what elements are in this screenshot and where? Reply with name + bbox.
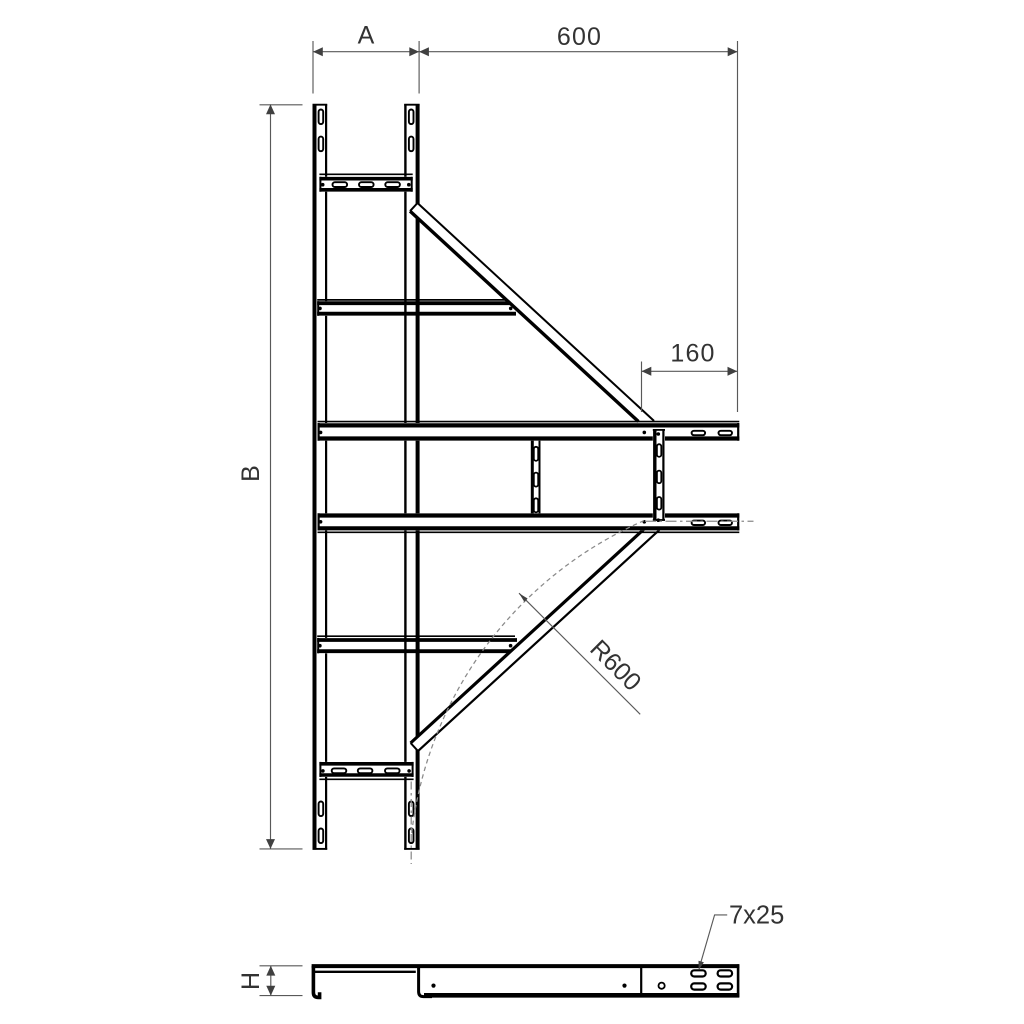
svg-text:7x25: 7x25 [729,902,784,930]
svg-text:H: H [237,972,265,990]
svg-text:B: B [237,465,265,482]
svg-text:160: 160 [670,340,715,368]
svg-text:A: A [358,22,375,50]
svg-text:600: 600 [557,23,602,51]
